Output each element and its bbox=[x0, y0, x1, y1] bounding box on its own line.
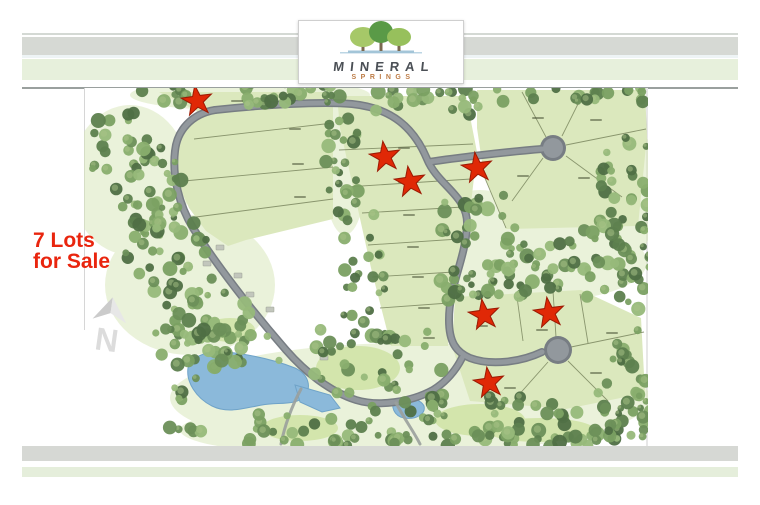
logo-title: MINERAL bbox=[298, 60, 463, 73]
listing-image: MINERAL SPRINGS 7 Lots for Sale N bbox=[0, 0, 760, 505]
footer-green-band bbox=[22, 467, 738, 477]
tagline-line2: for Sale bbox=[33, 251, 110, 272]
compass-north-label: N bbox=[93, 320, 121, 359]
north-arrow-icon: N bbox=[82, 294, 138, 360]
logo-trees-icon bbox=[300, 21, 462, 55]
footer-gray-band bbox=[22, 446, 738, 461]
logo-subtitle: SPRINGS bbox=[299, 74, 463, 82]
community-logo: MINERAL SPRINGS bbox=[298, 20, 464, 84]
lots-for-sale-tagline: 7 Lots for Sale bbox=[33, 230, 110, 272]
site-plan-map bbox=[84, 88, 648, 446]
tagline-line1: 7 Lots bbox=[33, 230, 110, 251]
